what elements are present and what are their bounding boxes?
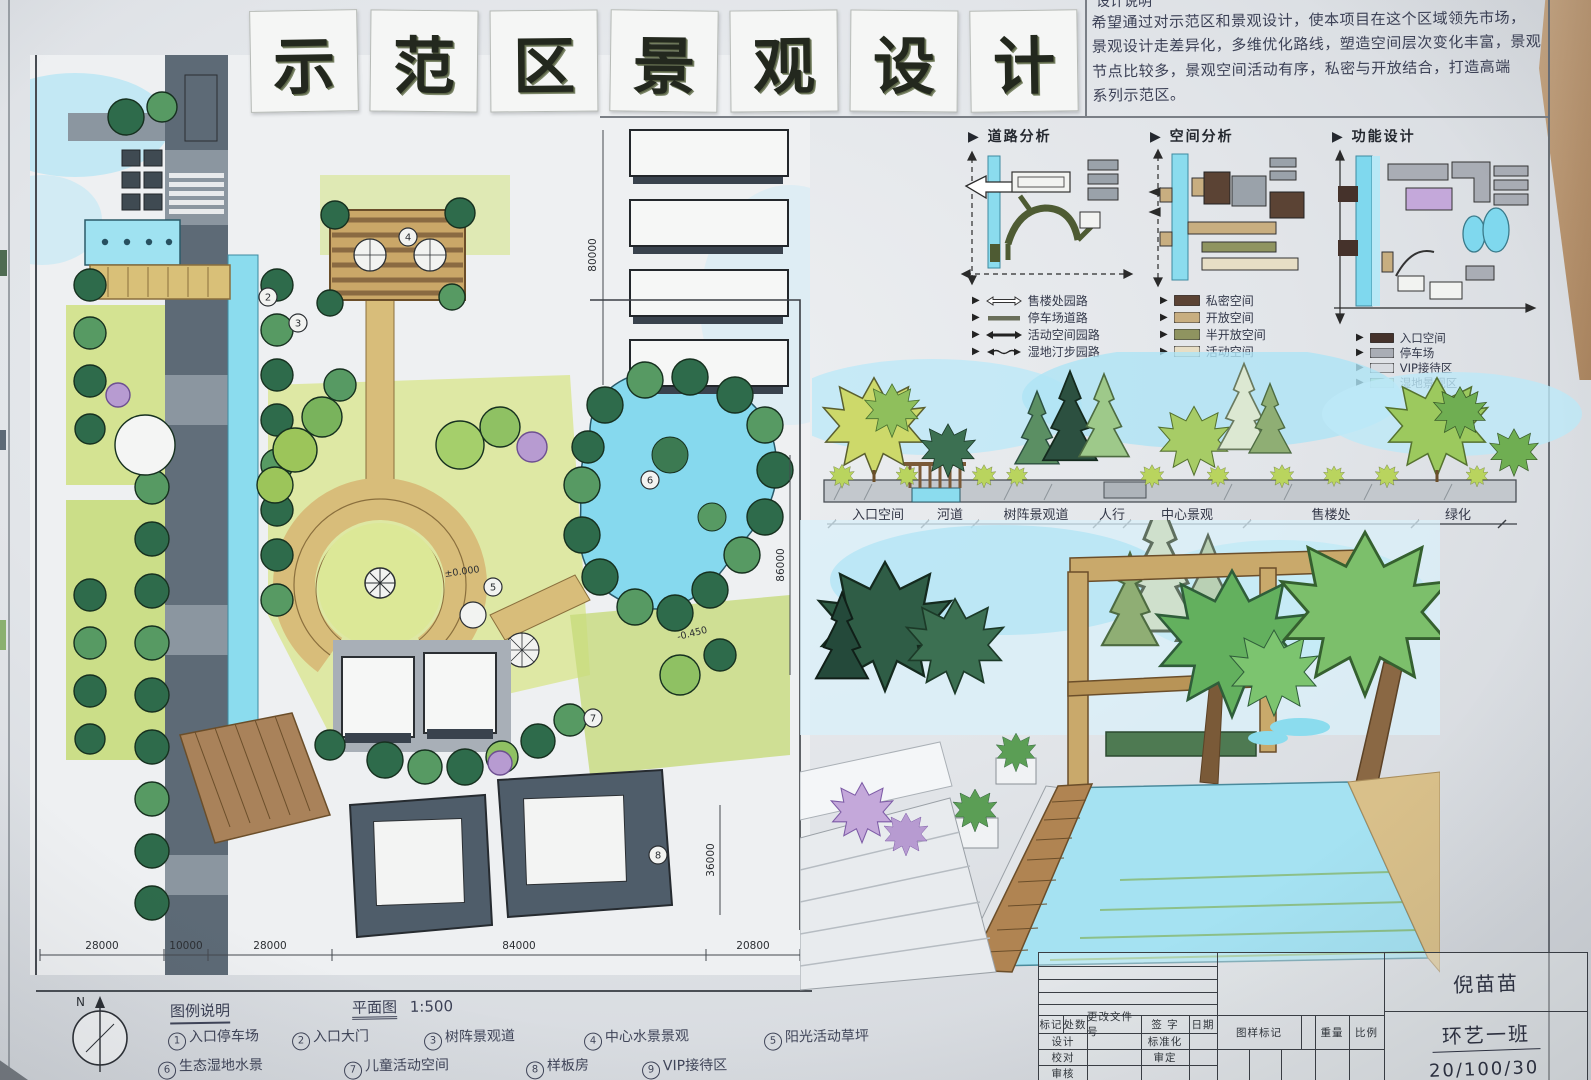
titleblock-grid-cell (1039, 953, 1218, 967)
svg-text:4: 4 (405, 233, 411, 244)
tb-header-date: 日期 (1189, 1015, 1218, 1034)
titleblock-grid-cell (1039, 979, 1218, 993)
perspective-view (800, 520, 1440, 1002)
pointer-icon: ▶ (972, 329, 980, 340)
titleblock-grid-cell (1189, 1049, 1218, 1066)
notes-left-border (1085, 0, 1087, 116)
header-divider (600, 116, 1548, 118)
titleblock-grid-cell (1039, 966, 1218, 980)
plan-scale: 平面图 1:500 (352, 995, 453, 1018)
tb-header-count: 处数 (1063, 1015, 1088, 1034)
titleblock-grid-cell (1301, 1015, 1316, 1050)
title-char-box: 计 (969, 9, 1078, 112)
dim-bottom-4: 84000 (502, 940, 535, 952)
section-label: 绿化 (1445, 508, 1471, 523)
dim-lower-right: 36000 (705, 843, 717, 876)
plan-scale-label: 平面图 (352, 998, 397, 1020)
legend-heading: 图例说明 (170, 999, 230, 1024)
tb-class-cell: 环艺一班 (1384, 1011, 1587, 1059)
svg-text:7: 7 (590, 714, 596, 725)
titleblock-grid-cell (1087, 1065, 1142, 1080)
road-line-sample-icon (986, 295, 1022, 307)
titleblock-grid-cell (1281, 1049, 1316, 1080)
tb-review: 审核 (1039, 1065, 1088, 1080)
road-line-sample-icon (986, 312, 1022, 324)
legend-item: 9VIP接待区 (642, 1054, 727, 1079)
legend-row: ▶ 售楼处园路 (972, 292, 1142, 309)
plan-scale-value: 1:500 (410, 997, 454, 1016)
titleblock-grid-cell (1087, 1033, 1142, 1050)
space-analysis-legend: ▶ 私密空间 ▶ 开放空间 ▶ 半开放空间 ▶ 活动空间 (1160, 292, 1320, 360)
dim-bottom-1: 28000 (85, 940, 118, 952)
space-legend-label: 开放空间 (1206, 309, 1254, 326)
titleblock-grid-cell (1315, 1049, 1350, 1080)
legend-row: ▶ 停车场道路 (972, 309, 1142, 326)
tb-scale: 比例 (1349, 1015, 1385, 1050)
title-char-box: 观 (729, 9, 838, 112)
titleblock-grid-cell (1189, 1065, 1218, 1080)
pointer-icon: ▶ (1160, 295, 1168, 306)
legend-item: 4中心水景景观 (584, 1025, 689, 1050)
road-legend-label: 售楼处园路 (1028, 292, 1088, 309)
road-line-sample-icon (986, 329, 1022, 341)
pointer-icon: ▶ (972, 295, 980, 306)
table-surface (1539, 0, 1591, 380)
space-swatch-icon (1174, 329, 1200, 340)
pointer-icon: ▶ (1160, 329, 1168, 340)
space-analysis-map (1148, 148, 1308, 288)
legend-item: 3树阵景观道 (424, 1025, 515, 1050)
svg-text:2: 2 (265, 293, 271, 304)
title-char: 设 (873, 16, 936, 107)
north-arrow: N (62, 988, 138, 1078)
section-elevation: 入口空间 河道 树阵景观道 人行 中心景观 售楼处 绿化 (812, 352, 1588, 540)
titleblock-grid-cell (1249, 1049, 1282, 1080)
photo-edge-mark (0, 430, 6, 450)
title-char: 示 (272, 15, 336, 106)
tb-header-filenum: 更改文件号 (1087, 1015, 1142, 1034)
tb-drawing-mark: 图样标记 (1217, 1015, 1302, 1050)
main-plan: 28000 10000 28000 84000 20800 80000 8600… (30, 55, 810, 975)
sheet-left-edge (8, 0, 10, 1080)
svg-text:6: 6 (647, 476, 653, 487)
tb-proof: 校对 (1039, 1049, 1088, 1066)
tb-standard: 标准化 (1141, 1033, 1190, 1050)
legend-item: 5阳光活动草坪 (764, 1025, 869, 1050)
legend-row: ▶ 入口空间 (1356, 330, 1526, 345)
north-label: N (76, 995, 85, 1009)
author-name: 倪苗苗 (1452, 966, 1519, 997)
legend-item: 8样板房 (526, 1055, 589, 1079)
function-legend-label: 入口空间 (1400, 330, 1446, 346)
title-char: 范 (393, 16, 456, 107)
title-char-box: 区 (490, 10, 599, 113)
legend-row: ▶ 私密空间 (1160, 292, 1320, 309)
sheet-right-frame (1548, 0, 1550, 1080)
road-analysis-legend: ▶ 售楼处园路 ▶ 停车场道路 ▶ 活动空间园路 ▶ 湿地汀步园路 (972, 292, 1142, 360)
space-legend-label: 半开放空间 (1206, 326, 1266, 343)
legend-row: ▶ 活动空间园路 (972, 326, 1142, 343)
persp-foreground (800, 742, 996, 990)
tb-header-sign: 签 字 (1141, 1015, 1190, 1034)
title-char: 计 (992, 16, 1055, 107)
tb-header-mark: 标记 (1039, 1015, 1064, 1034)
road-analysis-title: ▶ 道路分析 (968, 126, 1052, 146)
space-swatch-icon (1174, 295, 1200, 306)
title-char: 景 (632, 16, 695, 107)
title-char-box: 示 (249, 9, 359, 113)
function-swatch-icon (1370, 333, 1394, 343)
photo-of-design-board: 28000 10000 28000 84000 20800 80000 8600… (0, 0, 1591, 1080)
pointer-icon: ▶ (1356, 332, 1364, 343)
svg-text:5: 5 (490, 583, 496, 594)
pointer-icon: ▶ (972, 312, 980, 323)
svg-text:3: 3 (295, 319, 301, 330)
legend-item: 1入口停车场 (168, 1025, 259, 1050)
space-analysis-title: ▶ 空间分析 (1150, 126, 1234, 146)
space-legend-label: 私密空间 (1206, 292, 1254, 309)
legend-item: 7儿童活动空间 (344, 1054, 449, 1079)
titleblock-grid-cell (1141, 1065, 1190, 1080)
titleblock-grid-cell (1217, 1049, 1250, 1080)
title-block: 标记 处数 更改文件号 签 字 日期 设计 标准化 校对 审定 审核 图样标记 … (1038, 952, 1588, 1080)
pointer-icon: ▶ (1160, 312, 1168, 323)
road-legend-label: 停车场道路 (1028, 309, 1088, 326)
dim-bottom-3: 28000 (253, 940, 286, 952)
design-notes-line: 系列示范区。 (1092, 78, 1542, 108)
titleblock-grid-cell (1349, 1049, 1385, 1080)
photo-edge-mark (0, 620, 6, 650)
legend-item: 6生态湿地水景 (158, 1054, 263, 1079)
tb-weight: 重量 (1315, 1015, 1350, 1050)
design-notes: 设计说明 希望通过对示范区和景观设计，使本项目在这个区域领先市场， 景观设计走差… (1092, 0, 1542, 118)
dim-bottom-2: 10000 (169, 940, 202, 952)
space-swatch-icon (1174, 312, 1200, 323)
road-legend-label: 活动空间园路 (1028, 326, 1100, 343)
title-char-box: 设 (850, 10, 959, 113)
titleblock-upper-right-cell (1217, 953, 1385, 1016)
function-design-map (1326, 148, 1538, 326)
tb-design: 设计 (1039, 1033, 1088, 1050)
section-ground (824, 464, 1516, 502)
legend-row: ▶ 半开放空间 (1160, 326, 1320, 343)
title-char-box: 范 (369, 9, 478, 112)
dim-right: 86000 (775, 548, 787, 581)
legend-row: ▶ 开放空间 (1160, 309, 1320, 326)
road-analysis-map (960, 148, 1135, 288)
dim-buildings: 80000 (587, 238, 599, 271)
class-name: 环艺一班 (1431, 1017, 1540, 1053)
title-char-box: 景 (609, 9, 718, 112)
title-char: 观 (753, 16, 816, 107)
tb-approve: 审定 (1141, 1049, 1190, 1066)
photo-edge-mark (0, 250, 7, 276)
titleblock-grid-cell (1087, 1049, 1142, 1066)
dim-bottom-5: 20800 (736, 940, 769, 952)
svg-text:8: 8 (655, 851, 661, 862)
legend-item: 2入口大门 (292, 1025, 369, 1050)
titleblock-grid-cell (1189, 1033, 1218, 1050)
plan-bottom-frame (36, 990, 812, 992)
date-note: 20/100/30 (1429, 1057, 1540, 1080)
title-char: 区 (513, 16, 576, 107)
tb-name-cell: 倪苗苗 (1384, 953, 1587, 1012)
table-corner-shadow (0, 1052, 28, 1080)
function-design-title: ▶ 功能设计 (1332, 126, 1416, 146)
